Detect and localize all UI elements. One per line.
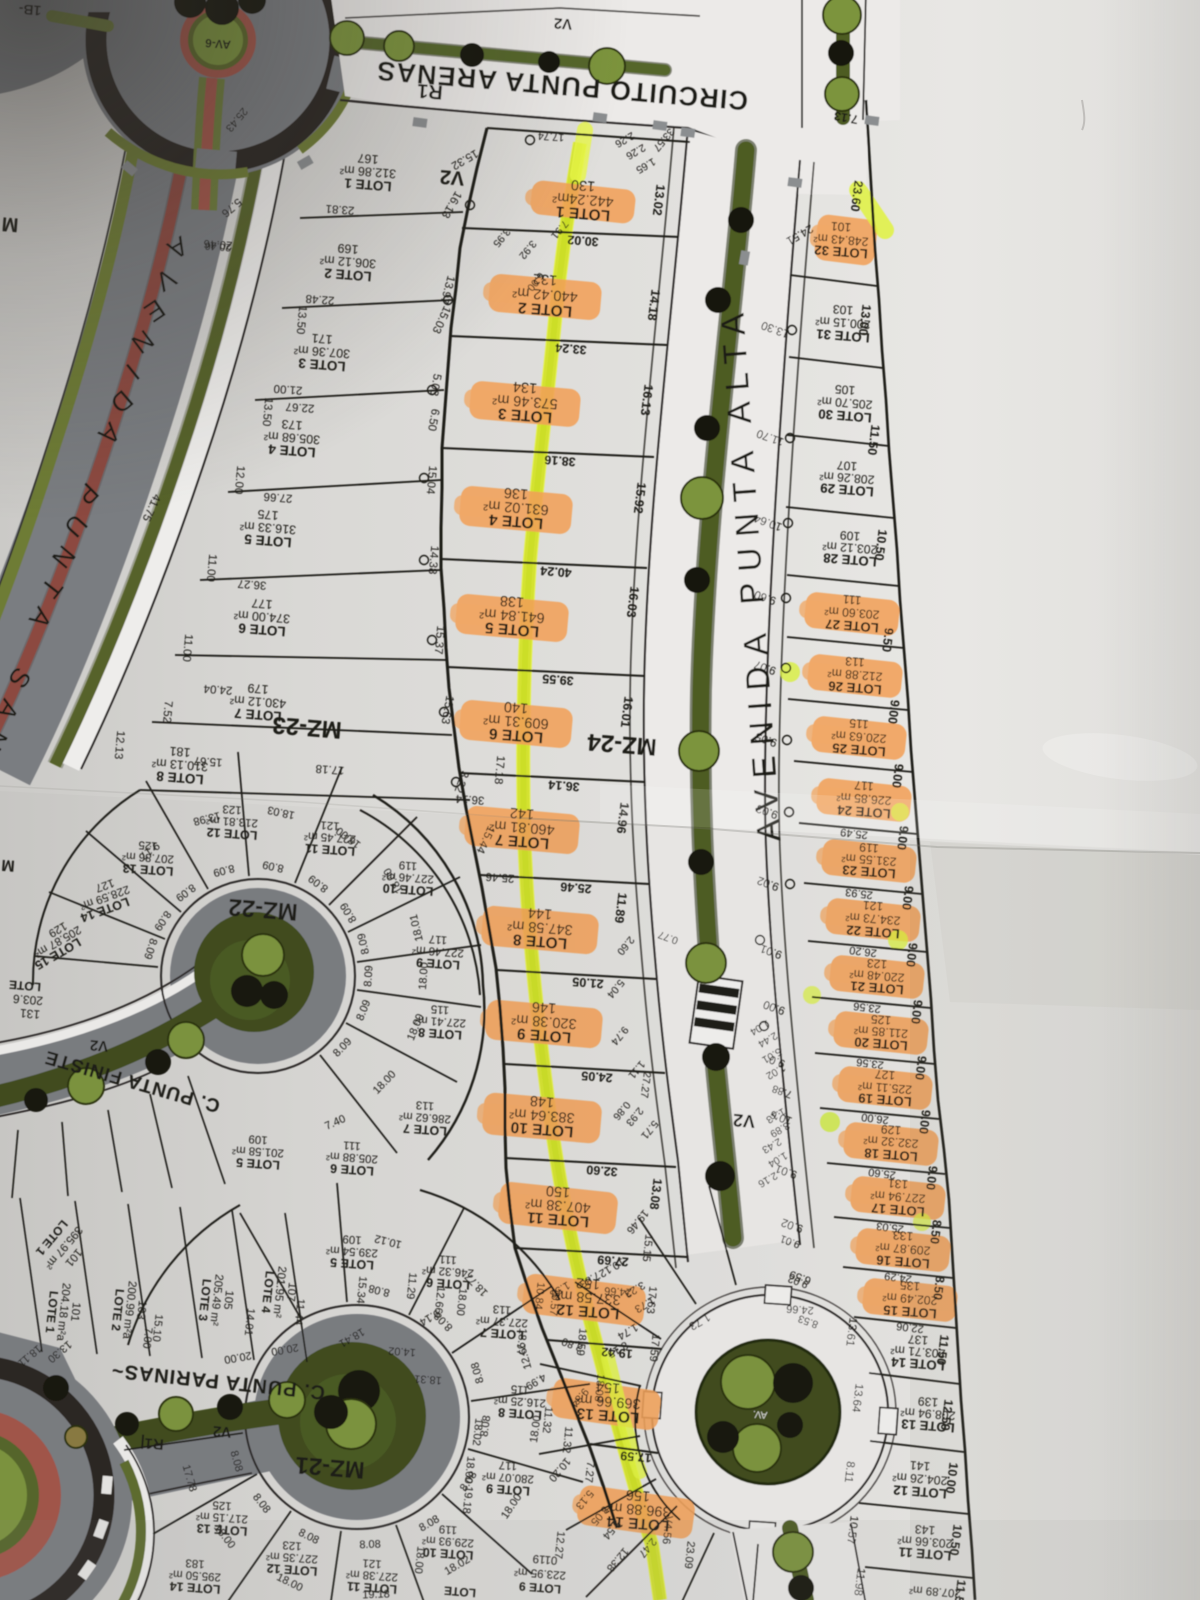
svg-text:17.18: 17.18: [492, 755, 506, 785]
svg-text:MZ-23: MZ-23: [271, 711, 342, 743]
svg-text:9.00: 9.00: [889, 763, 906, 789]
svg-text:15.37: 15.37: [432, 625, 446, 655]
svg-text:11.00: 11.00: [180, 633, 194, 662]
svg-text:36.14: 36.14: [548, 777, 580, 793]
svg-text:111: 111: [842, 592, 862, 607]
svg-text:MZ-24: MZ-24: [586, 728, 658, 760]
svg-text:7.52: 7.52: [160, 700, 174, 723]
svg-text:39.55: 39.55: [542, 671, 574, 687]
svg-text:24.04: 24.04: [203, 682, 233, 696]
svg-text:12.13: 12.13: [112, 730, 126, 760]
svg-text:15.67: 15.67: [193, 754, 223, 768]
svg-text:9.00: 9.00: [885, 699, 902, 725]
svg-text:9.50: 9.50: [879, 627, 896, 653]
